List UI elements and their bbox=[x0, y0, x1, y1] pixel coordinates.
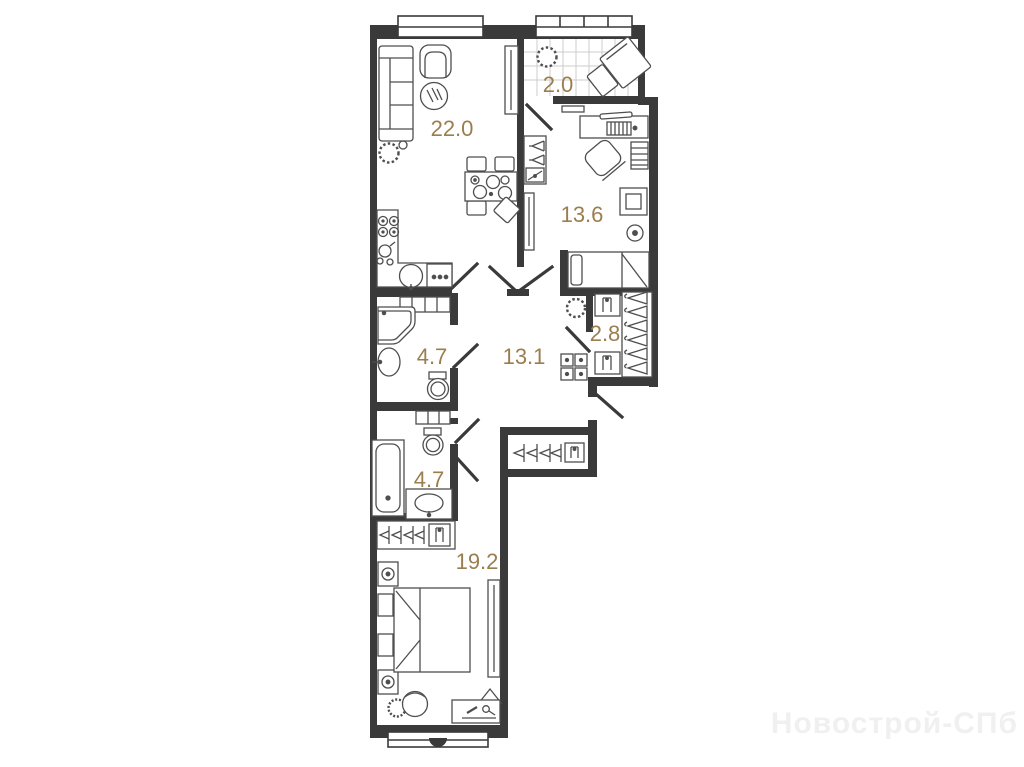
sofa bbox=[379, 46, 413, 141]
bath2-cabinet-row bbox=[416, 411, 450, 424]
bedroom2-closet bbox=[377, 521, 455, 549]
door-opening-right bbox=[519, 267, 552, 291]
wall-bath2-right-a bbox=[450, 418, 458, 424]
sconce-top-icon bbox=[378, 562, 398, 586]
dining-table bbox=[465, 157, 520, 223]
radiator-bedroom1 bbox=[562, 106, 584, 112]
door-bathroom1 bbox=[454, 345, 477, 367]
door-entrance bbox=[597, 395, 622, 417]
door-bathroom2 bbox=[456, 420, 478, 442]
floor-plan-page: 22.0 2.0 13.6 4.7 13.1 2.8 4.7 19.2 Ново… bbox=[0, 0, 1024, 767]
wardrobe-hanger-rail bbox=[622, 292, 652, 377]
speaker bbox=[627, 225, 643, 241]
wall-bath1-right-a bbox=[450, 293, 458, 325]
door-balcony bbox=[527, 105, 551, 129]
shower bbox=[378, 307, 415, 344]
nook-closet bbox=[524, 136, 546, 184]
wall-closet-right bbox=[588, 420, 597, 477]
door-opening-left bbox=[490, 267, 516, 291]
wall-bath-divider bbox=[370, 402, 458, 411]
wall-closet-top bbox=[508, 427, 588, 435]
kitchen-cabinet-dots bbox=[427, 264, 452, 287]
label-bathroom-2: 4.7 bbox=[414, 467, 445, 492]
vent-fan-hall-icon bbox=[567, 299, 585, 317]
vent-fan-living-icon bbox=[380, 141, 408, 163]
floor-plan: 22.0 2.0 13.6 4.7 13.1 2.8 4.7 19.2 bbox=[0, 0, 1024, 767]
cabinet-tall-living bbox=[505, 46, 518, 114]
wall-balcony-bottom bbox=[553, 96, 638, 104]
armchair bbox=[420, 45, 451, 78]
toilet-bathroom1 bbox=[428, 372, 449, 400]
bed-single bbox=[568, 252, 649, 288]
sink-bathroom2 bbox=[406, 489, 452, 519]
hall-mirror bbox=[524, 193, 534, 250]
wall-left bbox=[370, 25, 377, 738]
label-balcony: 2.0 bbox=[543, 72, 574, 97]
wardrobe-bedroom2 bbox=[488, 580, 500, 677]
label-bathroom-1: 4.7 bbox=[417, 344, 448, 369]
shelf-unit bbox=[631, 142, 648, 169]
label-living-kitchen: 22.0 bbox=[431, 116, 474, 141]
hall-closet-hangers bbox=[514, 443, 584, 462]
bathtub bbox=[372, 440, 404, 516]
tv-stand bbox=[620, 188, 647, 215]
office-chair bbox=[583, 138, 626, 181]
wall-closet-bottom bbox=[503, 469, 597, 477]
window-bedroom2 bbox=[388, 732, 488, 747]
wall-wardrobe-bottom bbox=[588, 377, 658, 386]
watermark: Новострой-СПб bbox=[771, 707, 1018, 741]
door-living bbox=[451, 264, 477, 289]
label-wardrobe: 2.8 bbox=[590, 321, 621, 346]
wall-bedroom2-right bbox=[500, 427, 508, 738]
bed-double bbox=[378, 588, 470, 672]
sconce-bottom-icon bbox=[378, 670, 398, 694]
window-living bbox=[398, 16, 483, 37]
door-wardrobe bbox=[567, 328, 589, 351]
label-bedroom-1: 13.6 bbox=[561, 202, 604, 227]
desk bbox=[580, 112, 648, 138]
pouf bbox=[421, 83, 448, 110]
wall-entry-stub bbox=[588, 377, 597, 397]
door-bedroom2 bbox=[456, 457, 477, 480]
vent-fan-balcony-icon bbox=[538, 48, 557, 67]
shoe-rack bbox=[561, 354, 587, 380]
vanity-table bbox=[452, 689, 502, 723]
label-hallway: 13.1 bbox=[503, 344, 546, 369]
wall-bath1-right-b bbox=[450, 368, 458, 411]
label-bedroom-2: 19.2 bbox=[456, 549, 499, 574]
toilet-bathroom2 bbox=[423, 428, 443, 455]
window-balcony bbox=[536, 16, 632, 37]
tub-chair bbox=[403, 692, 428, 717]
